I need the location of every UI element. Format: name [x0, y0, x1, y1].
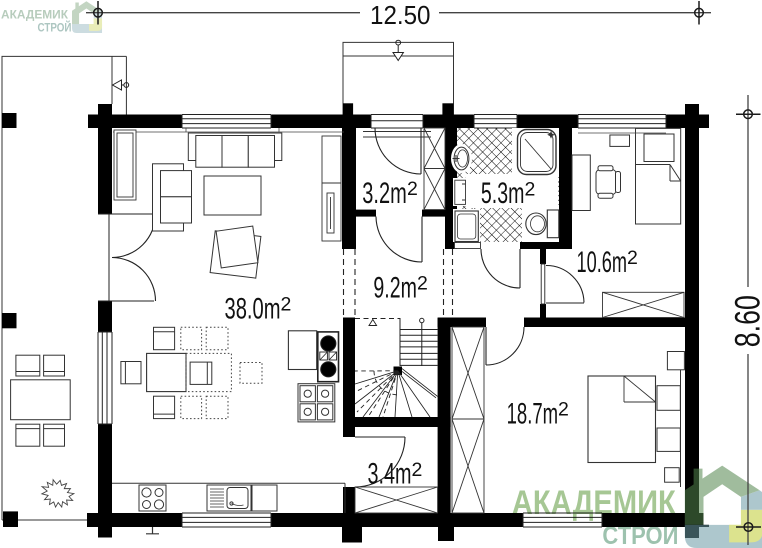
svg-text:2: 2 — [407, 178, 418, 200]
svg-text:2: 2 — [627, 247, 638, 269]
svg-text:5.3m: 5.3m — [481, 177, 525, 210]
svg-text:2: 2 — [281, 294, 292, 316]
svg-text:2: 2 — [417, 273, 428, 295]
svg-text:2: 2 — [412, 459, 423, 481]
svg-text:10.6m: 10.6m — [577, 246, 628, 279]
svg-text:38.0m: 38.0m — [225, 293, 281, 326]
svg-text:3.2m: 3.2m — [362, 177, 407, 210]
svg-text:2: 2 — [525, 178, 536, 200]
svg-text:СТРОЙ: СТРОЙ — [602, 520, 678, 548]
svg-text:АКАДЕМИК: АКАДЕМИК — [512, 484, 676, 522]
svg-text:СТРОЙ: СТРОЙ — [38, 20, 72, 35]
svg-text:2: 2 — [558, 399, 569, 421]
svg-text:12.50: 12.50 — [370, 0, 431, 30]
svg-text:9.2m: 9.2m — [373, 272, 417, 305]
svg-text:18.7m: 18.7m — [507, 398, 558, 431]
svg-text:3.4m: 3.4m — [368, 458, 412, 491]
svg-text:8.60: 8.60 — [729, 295, 762, 347]
